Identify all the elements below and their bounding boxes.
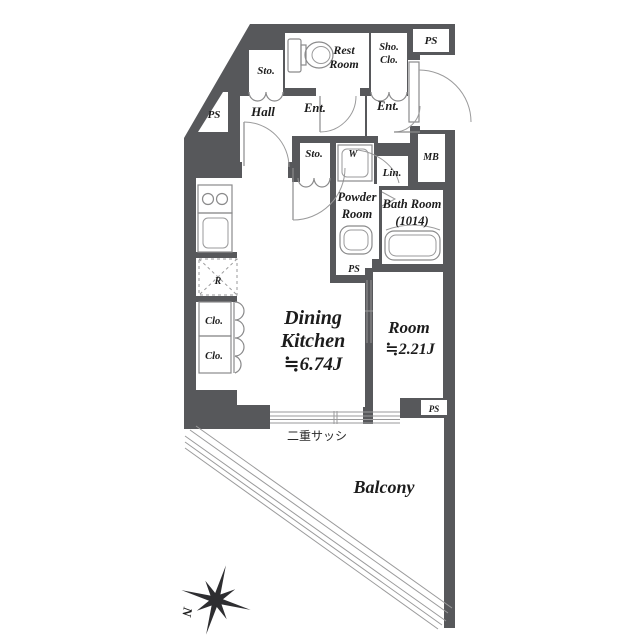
label-ent-outer: Ent.	[376, 99, 399, 113]
label-ps-top-right: PS	[425, 35, 438, 47]
counter-stub	[196, 252, 237, 258]
compass-icon: N	[179, 565, 250, 634]
label-room-size: ≒2.21J	[385, 341, 435, 358]
door-gap-hall-dk	[242, 160, 288, 180]
label-washer: W	[349, 149, 359, 160]
label-bath-2: (1014)	[395, 214, 428, 228]
balcony-boundary-lines	[185, 426, 452, 629]
counter-stub	[196, 296, 237, 302]
label-bath-1: Bath Room	[382, 197, 442, 211]
label-sto-top: Sto.	[257, 65, 274, 77]
label-sho-clo-1: Sho.	[379, 42, 399, 53]
label-clo-upper: Clo.	[205, 316, 223, 327]
floor-plan: N PS Rest Room Sto. Sho. Clo. PS Hall En…	[0, 0, 640, 640]
partition-top	[365, 268, 373, 280]
label-hall: Hall	[250, 104, 275, 119]
label-rest-room-1: Rest	[332, 43, 355, 57]
label-ps-left: PS	[208, 109, 221, 121]
label-lin: Lin.	[382, 167, 402, 179]
label-balcony: Balcony	[353, 477, 416, 497]
label-ps-powder: PS	[348, 264, 360, 275]
label-powder-2: Room	[341, 207, 373, 221]
label-clo-lower: Clo.	[205, 351, 223, 362]
floor-plan-drawing: N PS Rest Room Sto. Sho. Clo. PS Hall En…	[0, 0, 640, 640]
label-dk-size: ≒6.74J	[284, 354, 343, 375]
compass-north-label: N	[179, 605, 196, 618]
label-ent-inner: Ent.	[303, 101, 326, 115]
label-dining: Dining	[283, 307, 342, 329]
label-ps-room: PS	[429, 404, 440, 414]
partition-bottom	[365, 343, 373, 411]
label-mb: MB	[422, 152, 439, 163]
label-rest-room-2: Room	[328, 57, 358, 71]
label-sto-mid: Sto.	[305, 148, 322, 160]
label-room: Room	[387, 318, 430, 337]
label-sho-clo-2: Clo.	[380, 55, 398, 66]
label-double-sash: 二重サッシ	[287, 429, 347, 443]
balcony-side-wall	[444, 418, 455, 628]
label-fridge: R	[214, 276, 222, 287]
label-powder-1: Powder	[338, 190, 377, 204]
door-gap-rest-room	[316, 86, 360, 96]
window-strip	[270, 411, 400, 424]
label-kitchen: Kitchen	[280, 330, 345, 352]
wall-patch	[294, 136, 378, 143]
